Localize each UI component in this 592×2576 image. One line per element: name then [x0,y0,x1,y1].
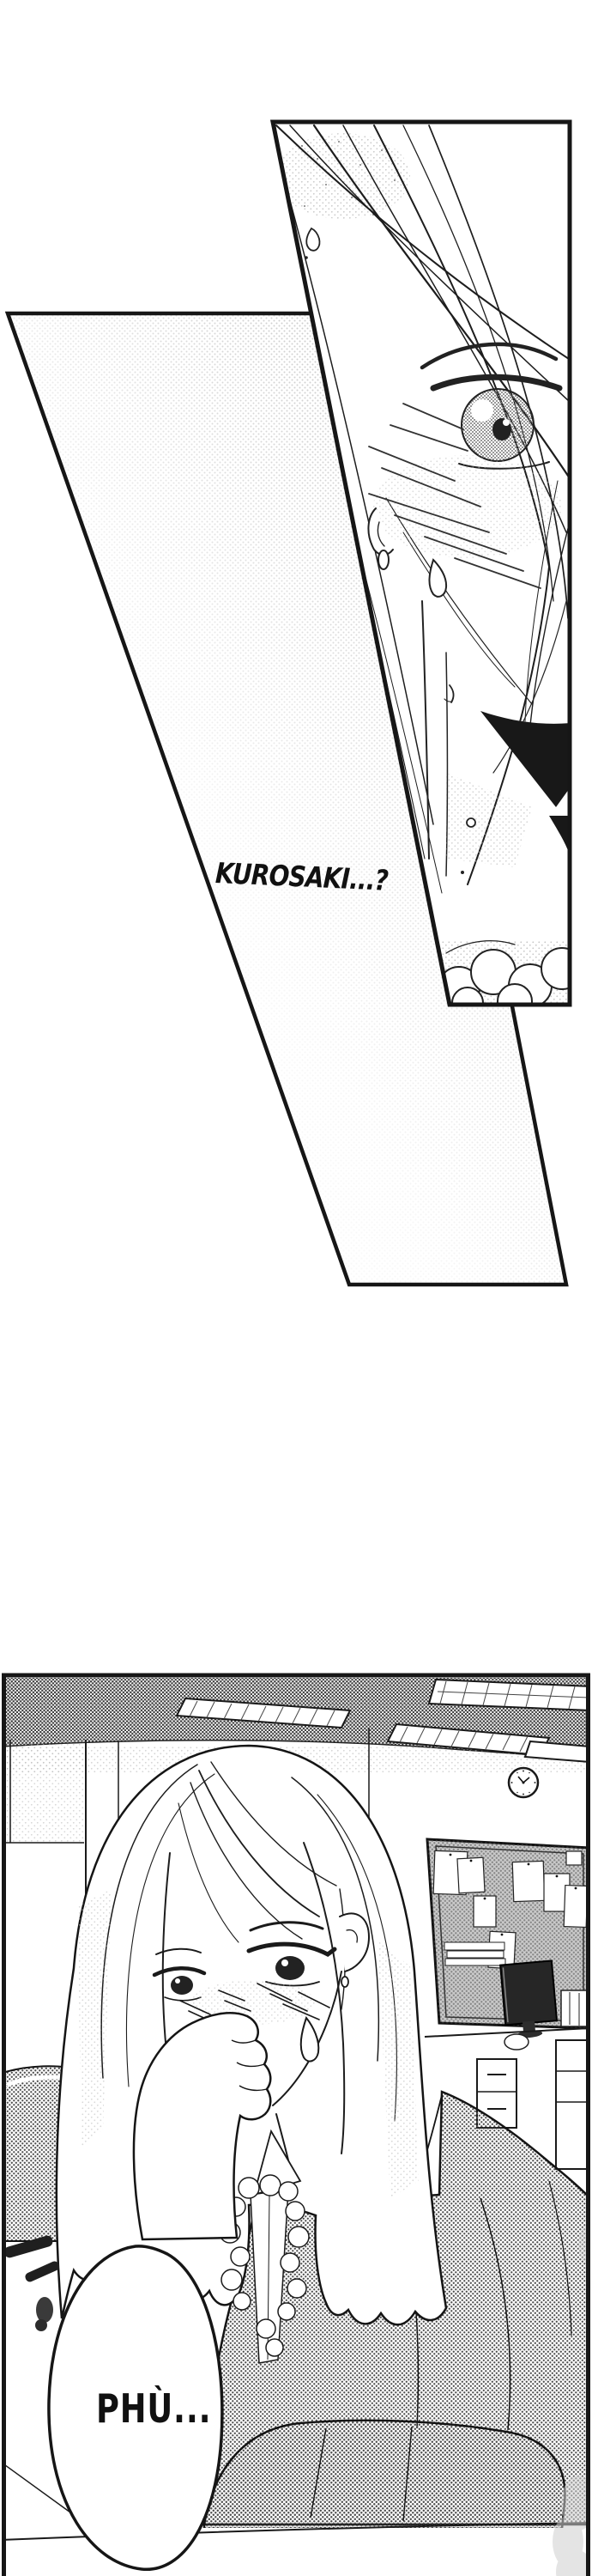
forearm-sleeve [204,2421,565,2529]
earring [378,550,389,569]
paper-ball [504,2034,529,2050]
panel-office [0,1675,592,2576]
manga-page-art [0,0,592,2576]
earring [341,1977,348,1987]
paper-tray [561,1990,589,2026]
wall-clock [509,1768,538,1797]
speech-bubble-text: PHÙ... [96,2385,211,2432]
manga-page: KUROSAKI...? PHÙ... [0,0,592,2576]
